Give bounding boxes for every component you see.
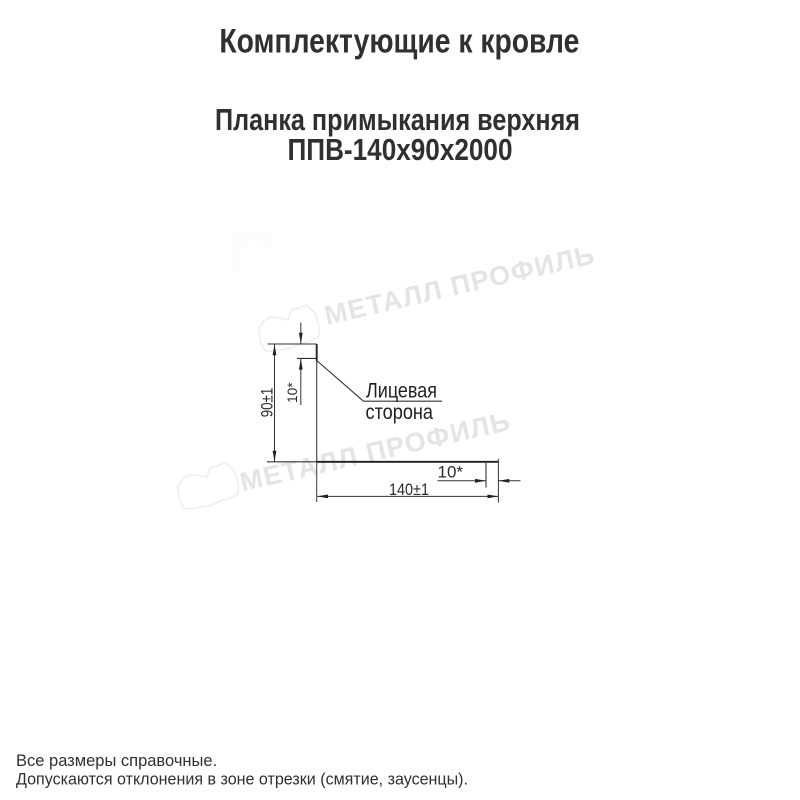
svg-text:140±1: 140±1	[389, 480, 429, 499]
svg-text:90±1: 90±1	[258, 388, 277, 418]
svg-text:Допускаются отклонения в зоне: Допускаются отклонения в зоне отрезки (с…	[16, 771, 468, 789]
svg-text:10*: 10*	[438, 463, 464, 482]
svg-text:сторона: сторона	[366, 401, 434, 424]
svg-text:Все размеры справочные.: Все размеры справочные.	[16, 752, 217, 770]
svg-text:Лицевая: Лицевая	[366, 379, 437, 402]
svg-text:10*: 10*	[285, 382, 300, 403]
svg-text:ППВ-140х90х2000: ППВ-140х90х2000	[288, 132, 513, 167]
svg-text:Комплектующие к кровле: Комплектующие к кровле	[219, 23, 579, 61]
